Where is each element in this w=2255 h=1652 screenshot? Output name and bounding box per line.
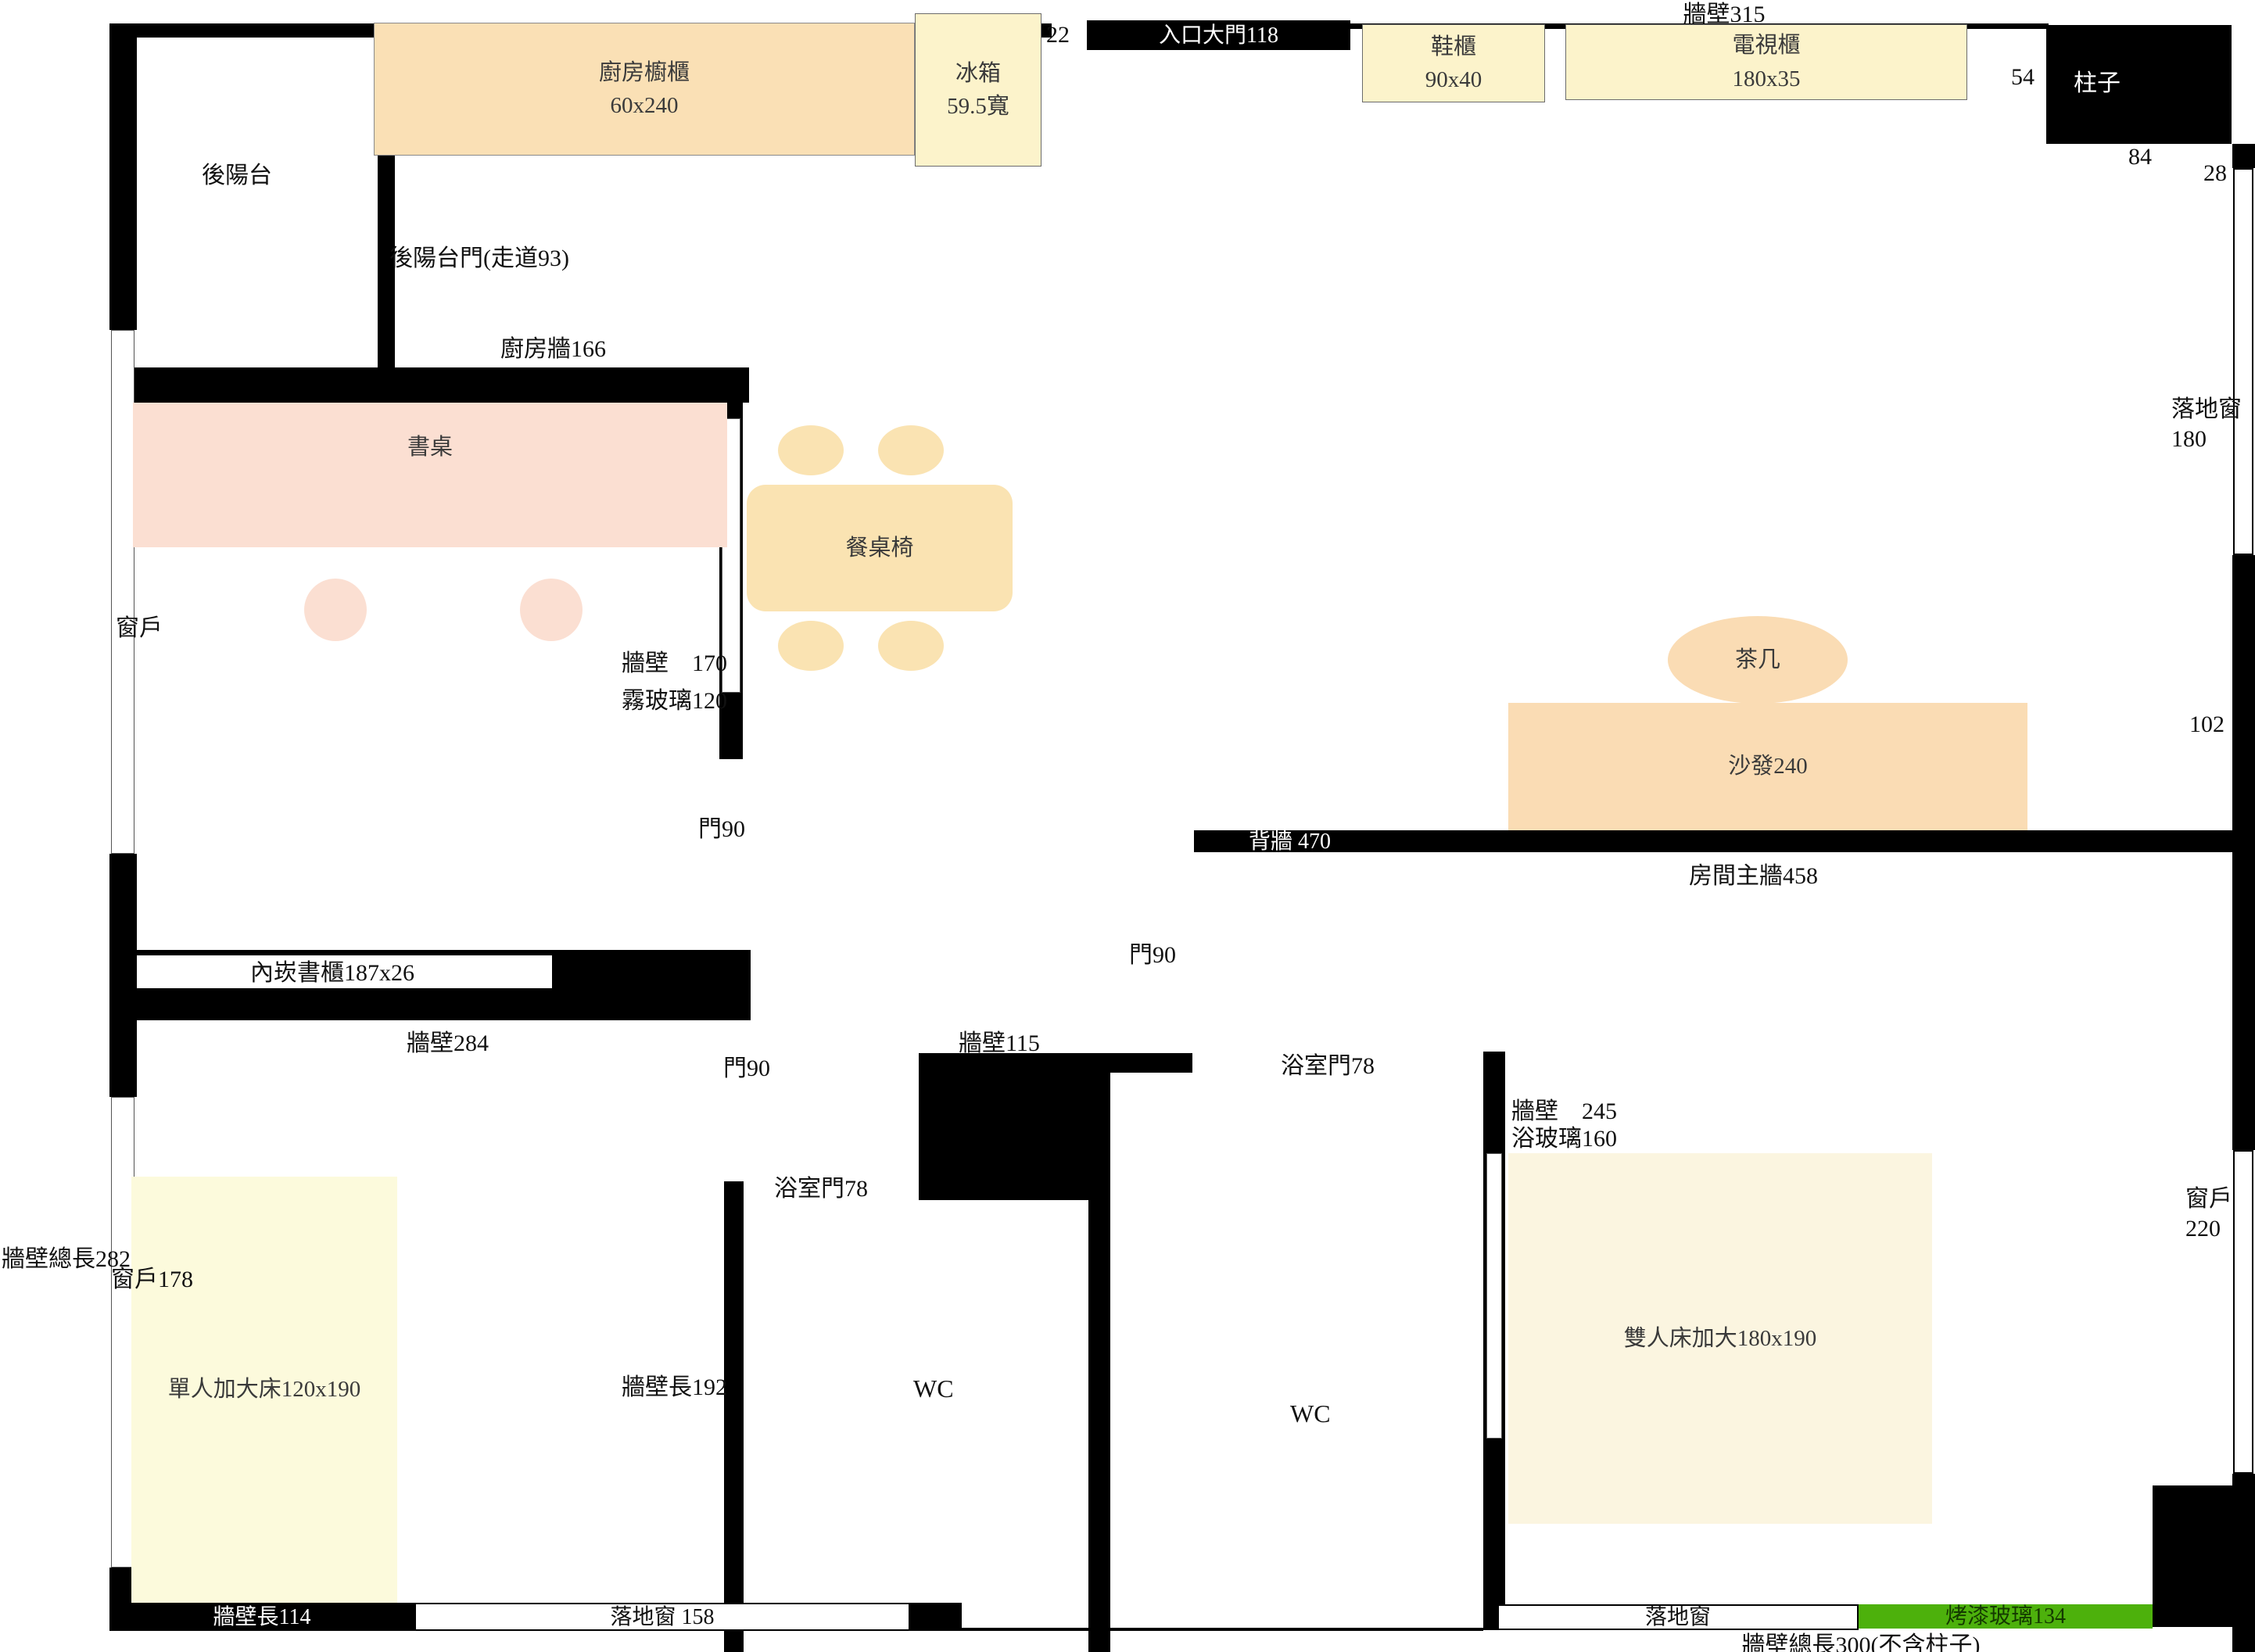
kitchen-wall-label: 廚房牆166 — [500, 335, 606, 364]
dim102-label: 102 — [2189, 710, 2225, 740]
window-left-study — [111, 330, 134, 854]
floor-window180-line2: 180 — [2171, 425, 2242, 454]
window-floor-master: 落地窗 — [1497, 1604, 1859, 1630]
wall245-label: 牆壁 245 — [1511, 1097, 1617, 1127]
window-floor-bedroom1: 落地窗 158 — [414, 1603, 910, 1631]
living-door-label: 門90 — [1129, 941, 1176, 970]
wall114-label: 牆壁長114 — [213, 1604, 311, 1631]
shoe-cabinet: 鞋櫃 90x40 — [1362, 24, 1545, 102]
wall-central-bath-block — [919, 1053, 1110, 1200]
fridge-size: 59.5寬 — [947, 90, 1009, 123]
room-main-wall-label: 房間主牆458 — [1689, 862, 1818, 891]
coffee-table: 茶几 — [1668, 616, 1848, 704]
kitchen-cabinet-size: 60x240 — [611, 89, 679, 122]
fridge: 冰箱 59.5寬 — [915, 13, 1041, 167]
wall315-label: 牆壁315 — [1642, 0, 1806, 30]
double-bed: 雙人床加大180x190 — [1508, 1153, 1932, 1524]
window220-line2: 220 — [2185, 1214, 2232, 1244]
bath-door-right-label: 浴室門78 — [1281, 1052, 1375, 1081]
wall284-label: 牆壁284 — [407, 1029, 489, 1059]
dining-table: 餐桌椅 — [747, 485, 1013, 611]
window220-label: 窗戶 220 — [2185, 1184, 2232, 1243]
bookshelf-label: 內崁書櫃187x26 — [250, 959, 414, 988]
outer-wall282-label: 牆壁總長282 — [2, 1245, 131, 1274]
balcony-door-label: 後陽台門(走道93) — [389, 244, 569, 274]
floor-window158-label: 落地窗 158 — [610, 1604, 714, 1631]
window220-line1: 窗戶 — [2185, 1184, 2232, 1214]
wall192-label: 牆壁長192 — [622, 1373, 727, 1403]
wall-bottom-bedroom1: 牆壁長114 — [109, 1603, 414, 1631]
balcony-label: 後陽台 — [202, 161, 272, 191]
painted-glass-bar: 烤漆玻璃134 — [1859, 1604, 2153, 1629]
fridge-name: 冰箱 — [955, 57, 1001, 90]
wall-living-back: 背牆 470 — [1194, 830, 2233, 852]
wall-study-top — [132, 367, 749, 403]
wall170-label: 牆壁 170 — [602, 649, 727, 679]
dining-chair-2 — [878, 425, 944, 475]
entrance-door-label: 入口大門118 — [1159, 22, 1278, 49]
dim84-label: 84 — [2128, 142, 2152, 172]
desk-label: 書桌 — [407, 431, 453, 464]
frosted-glass-label: 霧玻璃120 — [602, 686, 727, 716]
study-door-label: 門90 — [698, 815, 745, 844]
bedroom1-door-label: 門90 — [723, 1054, 770, 1084]
floor-plan: 背牆 470 入口大門118 牆壁長114 落地窗 158 落地窗 烤漆玻璃13… — [0, 0, 2255, 1652]
wall-right-mid — [2232, 555, 2255, 1150]
wall-left-top — [109, 23, 137, 330]
dining-table-label: 餐桌椅 — [845, 532, 913, 564]
wall-central-bath-topbar — [1110, 1053, 1192, 1073]
wall-corner-block — [2153, 1485, 2255, 1627]
dim22-label: 22 — [1046, 20, 1070, 50]
bath-glass-label: 浴玻璃160 — [1511, 1124, 1617, 1154]
sofa-label: 沙發240 — [1728, 750, 1808, 783]
tv-cabinet-name: 電視櫃 — [1732, 29, 1800, 62]
kitchen-cabinet-name: 廚房櫥櫃 — [599, 56, 690, 89]
dim28-label: 28 — [2203, 159, 2227, 188]
floor-window-master-label: 落地窗 — [1645, 1604, 1711, 1631]
sofa: 沙發240 — [1508, 703, 2027, 830]
window-right-floor-window — [2233, 168, 2253, 555]
single-bed: 單人加大床120x190 — [131, 1177, 397, 1603]
wc-left-label: WC — [913, 1373, 954, 1404]
double-bed-label: 雙人床加大180x190 — [1624, 1322, 1817, 1355]
window-left-label: 窗戶 — [116, 614, 163, 643]
dining-chair-3 — [778, 621, 844, 671]
wall-right-upper — [2232, 144, 2255, 168]
wall-bedroom1-right — [724, 1181, 744, 1652]
window-bath-glass — [1486, 1153, 1502, 1439]
wc-right-label: WC — [1290, 1398, 1331, 1429]
bottom-note-label: 牆壁總長300(不含柱子) — [1611, 1631, 2111, 1652]
desk-chair-2 — [520, 579, 583, 641]
shoe-cabinet-name: 鞋櫃 — [1431, 30, 1476, 63]
back-wall-label: 背牆 470 — [1249, 828, 1331, 855]
tv-cabinet-size: 180x35 — [1733, 63, 1801, 95]
wall-central-vertical — [1088, 1200, 1110, 1652]
wall-left-mid — [109, 854, 137, 1097]
tv-cabinet: 電視櫃 180x35 — [1565, 24, 1967, 100]
painted-glass-label: 烤漆玻璃134 — [1945, 1603, 2066, 1630]
kitchen-cabinet: 廚房櫥櫃 60x240 — [374, 23, 915, 156]
wall-bottom-thin-line — [962, 1628, 1483, 1631]
pillar-label: 柱子 — [2074, 69, 2121, 99]
bath-door-left-label: 浴室門78 — [774, 1174, 868, 1204]
wall-master-bottom-stub — [1483, 1604, 1497, 1630]
single-bed-label: 單人加大床120x190 — [168, 1373, 361, 1406]
entrance-door: 入口大門118 — [1087, 20, 1350, 50]
window-right-bedroom — [2233, 1150, 2253, 1474]
desk: 書桌 — [133, 403, 727, 547]
wall-bottom-stub — [910, 1603, 962, 1631]
floor-window180-label: 落地窗 180 — [2171, 395, 2242, 453]
dining-chair-1 — [778, 425, 844, 475]
dining-chair-4 — [878, 621, 944, 671]
dim54-label: 54 — [2011, 63, 2035, 92]
coffee-table-label: 茶几 — [1735, 643, 1780, 676]
floor-window180-line1: 落地窗 — [2171, 395, 2242, 425]
shoe-cabinet-size: 90x40 — [1425, 63, 1482, 96]
wall115-label: 牆壁115 — [959, 1029, 1040, 1059]
desk-chair-1 — [304, 579, 367, 641]
